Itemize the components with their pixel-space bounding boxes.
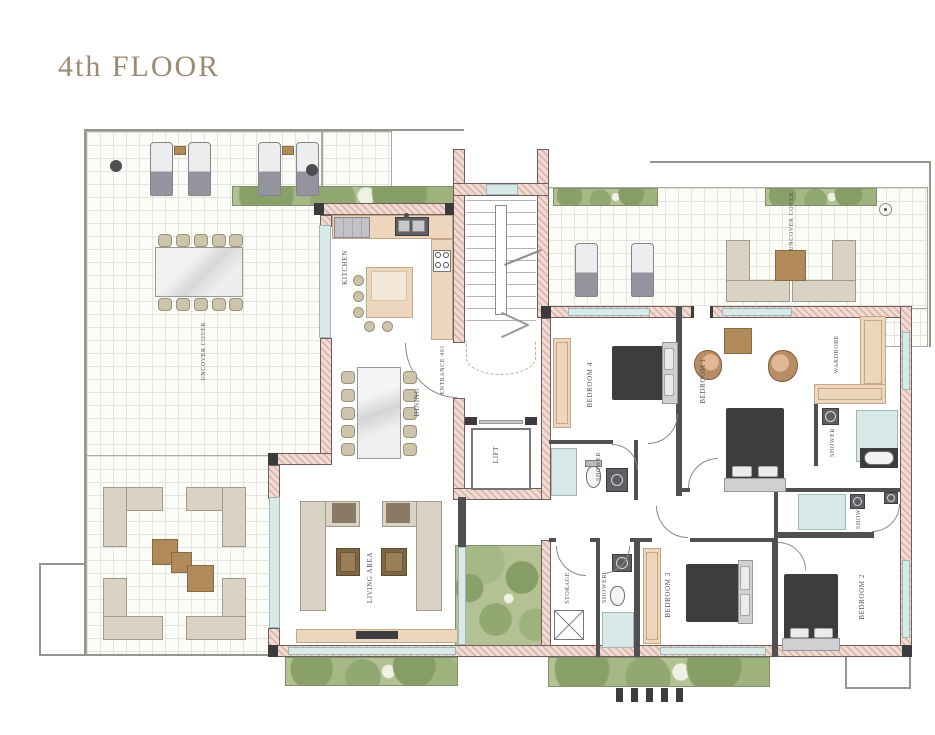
wardrobe-rail [646,552,658,640]
outdoor-chair [212,234,226,247]
wardrobe-rail [864,320,882,384]
partition [634,440,638,500]
lift-door [479,420,523,424]
outdoor-chair [212,298,226,311]
dining-chair [341,371,355,384]
wall [541,318,551,500]
sofa-cushion [332,503,356,523]
outdoor-chair [176,234,190,247]
door-arc [556,546,586,576]
burner [443,252,449,258]
window [902,332,910,390]
basin-bowl [825,411,836,422]
wall [537,149,549,318]
sink-basin [398,220,410,232]
boundary-line [909,656,911,689]
dining-chair [403,425,417,438]
lift-car [471,428,531,490]
side-table [282,146,294,155]
column [541,306,551,318]
outdoor-sofa [792,280,856,302]
window [458,547,466,645]
umbrella-base [110,160,122,172]
outdoor-chair [176,298,190,311]
pillow [814,628,833,638]
outdoor-chair [194,298,208,311]
bar-stool [364,321,375,332]
bar-stool [353,307,364,318]
side-table [174,146,186,155]
bed [686,564,740,622]
lift-jamb [465,417,477,425]
shower-label: SHOWER [830,428,836,457]
dining-label: DINING [413,388,421,416]
bar-stool [353,275,364,286]
shower-tray [798,494,846,530]
window [319,225,331,338]
pillow [664,348,674,370]
partition [682,488,690,492]
partition [814,404,818,466]
storage-label: STORAGE [565,572,571,604]
entrance-label: ENTRANCE 401 [440,345,446,395]
window [902,560,910,638]
bar-stool [353,291,364,302]
living-sofa [416,501,442,611]
bar-stool [382,321,393,332]
outdoor-chair [158,234,172,247]
boundary-line [84,129,86,656]
shower-tray [602,612,634,648]
pillow [740,594,750,616]
bed-headboard [724,478,786,492]
partition [778,532,874,538]
outdoor-chair [158,298,172,311]
burner [435,262,441,268]
planter-bottom [285,657,458,686]
door-jamb [691,306,694,318]
wall [541,540,551,657]
outdoor-chair [229,298,243,311]
boundary-line [845,656,847,689]
boundary-line [84,129,464,131]
louver-block [631,688,638,702]
window [486,184,518,195]
corner-sofa [103,487,127,547]
sun-lounger [575,243,598,297]
column [902,645,912,657]
stair-step [466,320,536,321]
wall [320,203,454,215]
bedroom4-label: BEDROOM 4 [586,362,594,408]
island-top [371,271,407,301]
column [268,645,278,657]
bedroom2-label: BEDROOM 2 [858,574,866,620]
corner-sofa [222,487,246,547]
wall [268,465,280,499]
boundary-line [39,563,41,656]
bedroom1-label: BEDROOM 1 [699,358,707,404]
living-sofa [300,501,326,611]
outdoor-table [775,250,806,281]
stair-mark [501,324,529,338]
dining-chair [341,407,355,420]
boundary-line [650,161,931,163]
pillow [732,466,752,477]
boundary-line [39,654,86,656]
faucet [404,213,409,218]
partition [458,497,466,547]
partition [549,440,613,444]
pillow [740,566,750,590]
sliding-door [288,647,456,655]
column [314,203,324,215]
pillow [790,628,809,638]
planter-center [455,545,545,652]
terrace-label: UNCOVER COVER [201,322,207,381]
dining-chair [403,443,417,456]
lift-jamb [525,417,537,425]
floor-plan: 4th FLOOR UNCOVER COVER [0,0,935,735]
landing-arc [466,341,536,375]
wardrobe-rail [818,388,882,400]
outdoor-sofa [726,280,790,302]
wall [453,149,465,343]
shower-tray [551,448,577,496]
stair-step [466,200,536,201]
planter [765,188,877,206]
boundary-line [929,161,931,347]
basin-bowl [887,494,895,502]
door-arc [648,414,678,444]
partition [774,486,778,538]
door-arc [778,542,806,570]
sofa-cushion [386,503,410,523]
drain-dot [884,208,887,211]
dining-table [357,367,401,459]
bedroom-table [724,328,752,354]
sliding-door [660,647,766,655]
boundary-line [84,654,274,656]
louver-block [616,688,623,702]
shower-label: SHOWER [596,452,602,481]
armchair [768,350,798,382]
window [269,497,280,628]
partition [634,538,640,657]
door-jamb [710,306,713,318]
sink-bowl [611,474,623,486]
living-label: LIVING AREA [366,552,374,603]
corner-sofa [186,616,246,640]
terrace-label: UNCOVER COVER [789,192,795,251]
planter-bottom [548,657,770,687]
pillow [758,466,778,477]
umbrella-base [306,164,318,176]
fridge [334,217,370,238]
column [268,453,278,465]
louver-block [646,688,653,702]
sun-lounger [188,142,211,196]
shower-label: SHOWER [602,574,608,603]
coffee-table-top [340,552,356,572]
coffee-table [187,565,214,592]
coffee-table-top [385,552,403,572]
wall [320,338,332,456]
tv [356,631,398,639]
corner-sofa [103,616,163,640]
partition [596,542,600,657]
column [445,203,454,215]
sink-basin [412,220,425,232]
door-arc [656,506,688,538]
storage-box [554,610,584,640]
door-arc [688,458,718,488]
dining-chair [341,425,355,438]
kitchen-label: KITCHEN [341,250,349,285]
wardrobe-label: WARDROBE [834,335,840,373]
window [722,308,792,316]
outdoor-chair [194,234,208,247]
partition [549,538,556,542]
outdoor-dining-table [155,247,243,297]
burner [443,262,449,268]
bed-headboard [782,638,840,651]
window [568,308,650,316]
dining-chair [341,443,355,456]
toilet [610,586,625,606]
boundary-line [845,687,911,689]
wall [453,398,465,500]
page-title: 4th FLOOR [58,50,220,84]
door-opening [694,306,710,318]
dining-chair [341,389,355,402]
partition [690,538,778,542]
bathtub [864,451,894,465]
pillow [664,374,674,396]
outdoor-chair [229,234,243,247]
sun-lounger [150,142,173,196]
louver-block [676,688,683,702]
door-arc [872,504,900,532]
lift-label: LIFT [492,446,500,463]
stair-stringer [495,205,507,315]
bed [612,346,664,400]
wardrobe-rail [556,342,568,424]
bedroom3-label: BEDROOM 3 [664,572,672,618]
sun-lounger [631,243,654,297]
shower-label: SHOWER [856,500,862,529]
dining-chair [403,371,417,384]
burner [435,252,441,258]
boundary-line [40,563,86,565]
sun-lounger [258,142,281,196]
planter [553,188,658,206]
louver-block [661,688,668,702]
